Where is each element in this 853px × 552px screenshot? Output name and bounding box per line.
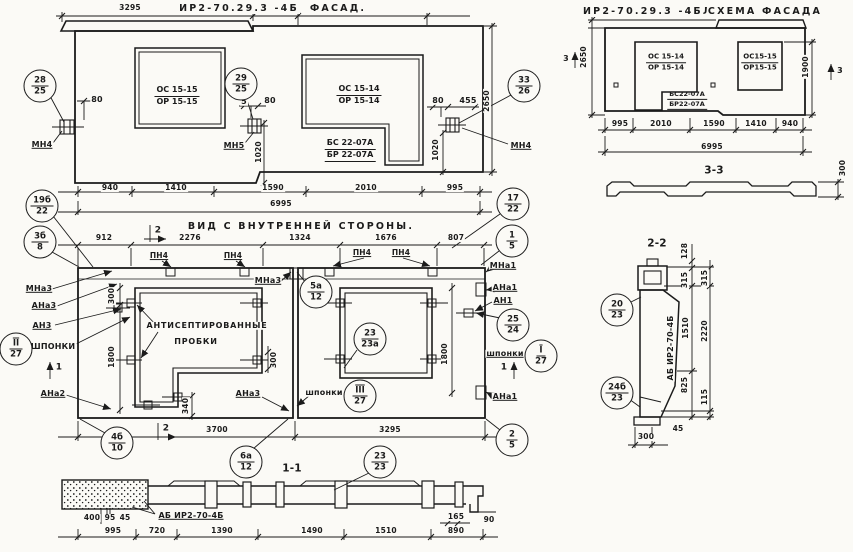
- callout-2-5: 25: [496, 424, 529, 457]
- section-mark-3-left: 3: [562, 55, 570, 63]
- window-mark-os15-15: ОС 15-15 ОР 15-15: [154, 85, 199, 107]
- callout-23-23: 2323: [364, 446, 397, 479]
- callout-33-26: 3326: [508, 70, 541, 103]
- anchor-label-mn4-right: МН4: [510, 142, 533, 150]
- label-ana3: АНа3: [31, 302, 58, 310]
- pn4-label-1: ПН4: [149, 252, 169, 260]
- callout-1-5: 15: [496, 225, 529, 258]
- dim-80-right: 80: [431, 97, 445, 105]
- section-mark-2-top: 2: [154, 226, 162, 235]
- dim-1020-mid: 1020: [255, 140, 263, 164]
- scheme-dim-940: 940: [781, 120, 799, 128]
- label-ana1-bottom: АНа1: [492, 393, 519, 401]
- s11-dim-1510: 1510: [374, 527, 398, 535]
- dim-80-mid: 80: [263, 97, 277, 105]
- section-1-1-profile: [62, 480, 483, 512]
- scheme-dim-6995: 6995: [700, 143, 724, 151]
- anchor-label-mn5: МН5: [223, 142, 246, 150]
- s22-dim-315-outer: 315: [701, 269, 709, 287]
- dim-80-left: 80: [90, 96, 104, 104]
- note-antiseptic-2: пробки: [173, 338, 219, 346]
- pn4-label-4: ПН4: [391, 249, 411, 257]
- s11-dim-1490: 1490: [300, 527, 324, 535]
- section-3-3-dim-300: 300: [839, 159, 847, 177]
- scheme-dim-2010: 2010: [649, 120, 673, 128]
- inner-dim-300-left: 300: [108, 287, 116, 305]
- s22-dim-1510: 1510: [682, 316, 690, 340]
- s22-dim-2220: 2220: [701, 319, 709, 343]
- scheme-dim-995: 995: [611, 120, 629, 128]
- s11-dim-720: 720: [148, 527, 166, 535]
- inner-view-outline: [78, 268, 486, 418]
- dim-45: 45: [119, 514, 132, 522]
- s22-dim-115: 115: [701, 388, 709, 406]
- anchor-label-mn4-left: МН4: [31, 141, 54, 149]
- callout-25-24: 2524: [497, 309, 530, 342]
- drawing-linework: [0, 0, 853, 552]
- facade-title: Фасад.: [309, 4, 367, 14]
- dim-1590: 1590: [261, 184, 285, 192]
- s22-dim-300: 300: [637, 433, 655, 441]
- callout-23-23a: 2323а: [354, 323, 387, 356]
- dim-1020-right: 1020: [432, 138, 440, 162]
- scheme-dim-1590: 1590: [702, 120, 726, 128]
- callout-I-27: I27: [525, 340, 558, 373]
- section-mark-2-bottom: 2: [162, 424, 170, 433]
- inner-dim-3700: 3700: [205, 426, 229, 434]
- note-antiseptic-1: Антисептированные: [146, 322, 269, 330]
- inner-dim-1800-right: 1800: [441, 342, 449, 366]
- label-ab-ir2-70-4b: АБ ИР2-70-4Б: [157, 512, 224, 520]
- inner-dim-912: 912: [95, 234, 113, 242]
- scheme-balcony-mark: БС22-07АБР22-07А: [667, 90, 707, 110]
- dim-940: 940: [101, 184, 119, 192]
- label-shponki-left: ШПОНКИ: [30, 343, 77, 351]
- scheme-dim-1900: 1900: [802, 55, 810, 79]
- s22-dim-825: 825: [681, 376, 689, 394]
- facade-code: ИР2-70.29.3 -4б: [178, 4, 300, 14]
- dim-95: 95: [104, 514, 117, 522]
- dim-1410: 1410: [164, 184, 188, 192]
- inner-dim-807: 807: [447, 234, 465, 242]
- dim-455: 455: [458, 97, 477, 105]
- label-ana2: АНа2: [40, 390, 67, 398]
- pn4-label-2: ПН4: [223, 252, 243, 260]
- callout-20-23: 2023: [601, 294, 634, 327]
- scheme-dim-2650: 2650: [580, 45, 588, 69]
- window-mark-os15-14: ОС 15-14 ОР 15-14: [336, 84, 381, 106]
- section-1-1-label: 1-1: [281, 463, 303, 474]
- balcony-mark-bs22-07a: БС 22-07А БР 22-07А: [325, 138, 376, 162]
- callout-17-22: 1722: [497, 188, 530, 221]
- s22-dim-45: 45: [672, 425, 685, 433]
- label-shponki-inner: шпонки: [304, 389, 343, 397]
- callout-24b-23: 24б23: [601, 377, 634, 410]
- dim-995: 995: [446, 184, 464, 192]
- callout-28-25: 2825: [24, 70, 57, 103]
- dim-2010: 2010: [354, 184, 378, 192]
- scheme-code: ИР2-70.29.3 -4бл: [582, 7, 714, 17]
- inner-view-dimension-lines: [50, 225, 514, 441]
- scheme-title: Схема фасада: [707, 7, 823, 17]
- callout-4b-10: 4б10: [101, 427, 134, 460]
- callout-6a-12: 6а12: [230, 446, 263, 479]
- dim-6995: 6995: [269, 200, 293, 208]
- label-an3: АН3: [31, 322, 52, 330]
- callout-3b-8: 3б8: [24, 226, 57, 259]
- label-an1: АН1: [492, 297, 513, 305]
- inner-dim-1676: 1676: [374, 234, 398, 242]
- dim-90: 90: [483, 516, 496, 524]
- inner-dim-340: 340: [182, 397, 190, 415]
- inner-dim-1800-left: 1800: [108, 345, 116, 369]
- label-ana3-inner: АНа3: [235, 390, 262, 398]
- inner-dim-300-mid: 300: [270, 351, 278, 369]
- blueprint-sheet: ИР2-70.29.3 -4б Фасад. 3295 80 5 80 80 4…: [0, 0, 853, 552]
- dim-2650: 2650: [483, 89, 491, 113]
- label-mna3: МНа3: [25, 285, 53, 293]
- pn4-label-3: ПН4: [352, 249, 372, 257]
- section-3-3-profile: [607, 182, 816, 196]
- section-2-2-label: 2-2: [646, 238, 668, 249]
- scheme-dim-1410: 1410: [744, 120, 768, 128]
- inner-view-title: Вид с внутренней стороны.: [187, 222, 415, 232]
- section-3-3-label: 3-3: [703, 165, 725, 176]
- callout-II-27: II27: [0, 333, 33, 366]
- callout-5a-12: 5а12: [300, 276, 333, 309]
- inner-dim-1324: 1324: [288, 234, 312, 242]
- s11-dim-1390: 1390: [210, 527, 234, 535]
- scheme-window-mark-2: ОС15-15ОР15-15: [741, 52, 778, 72]
- label-ana1-top: АНа1: [492, 284, 519, 292]
- section-mark-3-right: 3: [836, 67, 844, 75]
- callout-29-25: 2925: [225, 68, 258, 101]
- s11-dim-890: 890: [447, 527, 465, 535]
- label-mna3-inner: МНа3: [254, 277, 282, 285]
- dim-3295-top: 3295: [118, 4, 142, 12]
- s22-label-ab-ir2-70-4b: АБ ИР2-70-4Б: [667, 314, 675, 381]
- s22-dim-128: 128: [681, 242, 689, 260]
- inner-dim-2276: 2276: [178, 234, 202, 242]
- scheme-window-mark-1: ОС 15-14ОР 15-14: [646, 52, 686, 72]
- callout-19b-22: 19б22: [26, 190, 59, 223]
- section-mark-1-right: 1: [500, 363, 508, 372]
- section-mark-1-left: 1: [55, 363, 63, 372]
- callout-III-27: III27: [344, 380, 377, 413]
- dim-400: 400: [83, 514, 101, 522]
- s11-dim-995: 995: [104, 527, 122, 535]
- label-shponki-right: шпонки: [485, 350, 524, 358]
- dim-165: 165: [447, 513, 465, 521]
- label-mna1: МНа1: [489, 262, 517, 270]
- s22-dim-315-inner: 315: [681, 271, 689, 289]
- inner-dim-3295: 3295: [378, 426, 402, 434]
